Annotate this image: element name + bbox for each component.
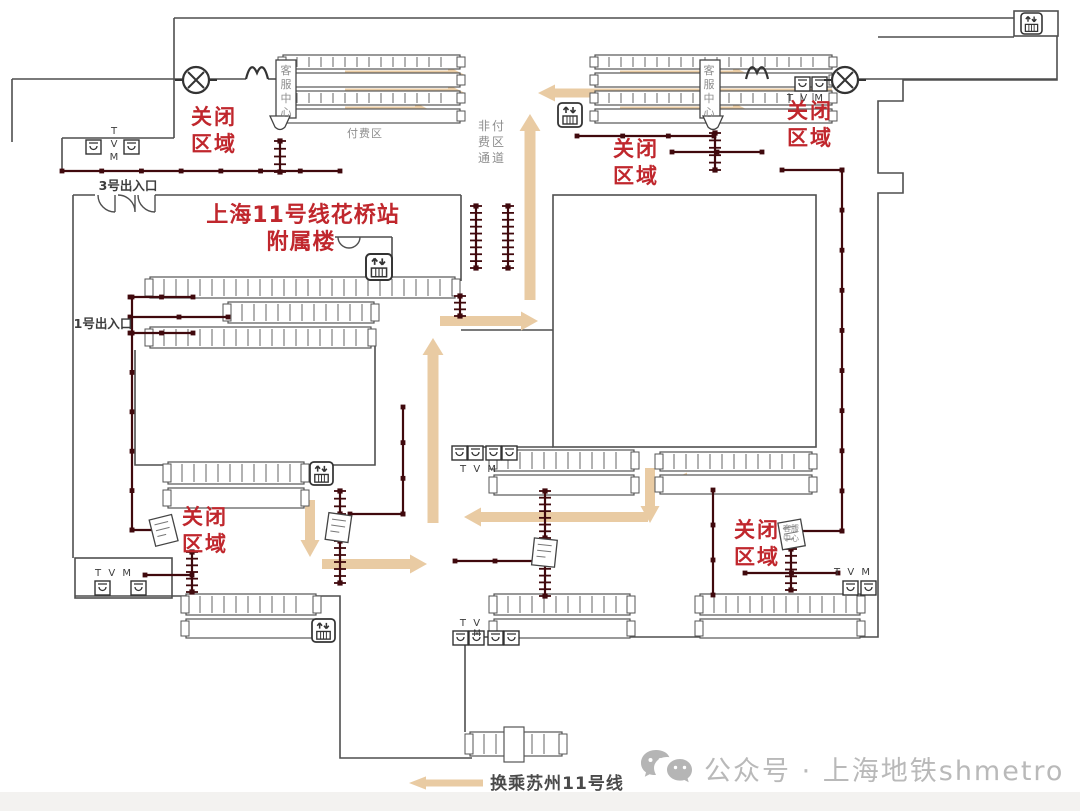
bank-cap — [655, 477, 663, 492]
barrier-dot — [840, 168, 845, 173]
station-map: 关闭区域关闭区域关闭区域关闭区域关闭区域上海11号线花桥站附属楼非付费区通道付费… — [0, 0, 1080, 811]
gate-dot — [505, 203, 510, 208]
tvm-icon — [486, 446, 501, 460]
closed-barrier-line — [60, 169, 343, 174]
tvm-label: T V M — [786, 93, 825, 104]
barrier-dot — [711, 523, 716, 528]
barrier-dot — [130, 449, 135, 454]
barrier-dot — [840, 328, 845, 333]
arrow-head — [464, 508, 481, 527]
customer-service-label: 客 — [281, 63, 292, 77]
paid-concourse-room — [553, 195, 816, 447]
exit-1-label: 1号出入口 — [74, 316, 133, 331]
tvm-icon — [124, 140, 139, 154]
fare-gate-icon — [470, 203, 482, 270]
elevator-icon — [310, 462, 333, 485]
gate-dot — [542, 488, 547, 493]
closed-barrier-line — [840, 168, 845, 534]
bank-cap — [145, 329, 153, 346]
flow-arrows — [196, 66, 832, 789]
barrier-dot — [840, 448, 845, 453]
bank-cap — [809, 477, 817, 492]
tvm-icon — [488, 631, 503, 645]
barrier-dot — [130, 331, 135, 336]
bank-cap — [457, 93, 465, 103]
flow-arrow — [440, 312, 538, 331]
tvm-label: T V M — [459, 464, 498, 475]
barrier-dot — [840, 368, 845, 373]
closed-barrier-line — [401, 405, 406, 517]
entrance-door-icon — [118, 195, 135, 212]
barrier-dot — [493, 559, 498, 564]
arrow-head — [409, 776, 426, 789]
bank-row — [700, 594, 860, 615]
escalator-bank — [181, 594, 321, 638]
tvm-icon — [468, 446, 483, 460]
customer-service-label: 心 — [281, 106, 292, 119]
station-title: 上海11号线花桥站 — [206, 202, 400, 228]
paid-area-label: 付费区 — [347, 127, 383, 140]
closed-area-label: 关闭 — [613, 137, 659, 161]
bank-row — [228, 302, 374, 323]
bank-cap — [590, 75, 598, 85]
watermark-text: 公众号 · 上海地铁shmetro — [704, 749, 1064, 788]
barrier-dot — [401, 440, 406, 445]
bank-cap — [655, 454, 663, 469]
barrier-dot — [840, 408, 845, 413]
closed-barrier-line — [670, 150, 765, 155]
bank-cap — [627, 596, 635, 613]
barrier-dot — [715, 150, 720, 155]
closed-area-label: 关闭 — [191, 105, 237, 129]
gate-dot — [473, 265, 478, 270]
elevator-icon — [1021, 13, 1042, 34]
bank-row — [150, 277, 455, 298]
non-paid-passage-label: 非付 — [478, 119, 506, 133]
barrier-dot — [711, 593, 716, 598]
tvm-icon — [843, 581, 858, 595]
bank-cap — [181, 596, 189, 613]
closed-area-label: 关闭 — [734, 518, 780, 542]
tvm-icon — [795, 77, 810, 91]
closed-area-label: 区域 — [182, 532, 228, 556]
bank-cap — [631, 452, 639, 469]
barrier-dot — [143, 573, 148, 578]
escalator-bank — [655, 452, 817, 494]
station-floor-plan: 关闭区域关闭区域关闭区域关闭区域关闭区域上海11号线花桥站附属楼非付费区通道付费… — [0, 0, 1080, 811]
closed-area-label: 区域 — [787, 126, 833, 150]
closed-crossing-icon — [175, 67, 217, 93]
barrier-dot — [258, 169, 263, 174]
fare-gate-icon — [186, 549, 198, 594]
arrow-head — [520, 114, 541, 131]
bank-cap — [489, 596, 497, 613]
elevator-icon — [558, 103, 582, 127]
bank-cap — [590, 111, 598, 121]
transfer-label: 换乘苏州11号线 — [490, 773, 624, 794]
service-booth-icon — [149, 514, 178, 546]
bank-cap — [457, 111, 465, 121]
tvm-icon — [95, 581, 110, 595]
bank-cap — [809, 454, 817, 469]
non-paid-passage-label: 费区 — [478, 135, 506, 149]
tvm-label: M — [110, 152, 119, 163]
barrier-dot — [130, 409, 135, 414]
fare-gate-icon — [785, 546, 797, 592]
barrier-dot — [840, 208, 845, 213]
bank-cap — [368, 329, 376, 346]
barrier-dot — [840, 529, 845, 534]
service-booth-icon — [325, 513, 352, 543]
bank-row — [494, 475, 634, 495]
tvm-body — [488, 631, 503, 645]
closed-area-label: 区域 — [191, 132, 237, 156]
bank-cap — [301, 490, 309, 506]
tvm-body — [468, 446, 483, 460]
bank-cap — [829, 57, 837, 67]
gate-dot — [337, 580, 342, 585]
escalator-bank — [223, 302, 379, 323]
closed-barrier-line — [130, 331, 135, 533]
customer-service-label: 心 — [704, 106, 715, 119]
elevator-icon — [366, 254, 392, 280]
barrier-dot — [99, 169, 104, 174]
closed-barrier-line — [348, 512, 406, 517]
closed-area-label: 关闭 — [182, 505, 228, 529]
barrier-dot — [401, 405, 406, 410]
gate-dot — [542, 593, 547, 598]
bank-cap — [695, 596, 703, 613]
bank-row — [283, 109, 460, 123]
gate-dot — [473, 203, 478, 208]
tvm-body — [124, 140, 139, 154]
booth-frame — [325, 513, 352, 543]
bank-cap — [145, 279, 153, 296]
bank-cap — [627, 621, 635, 636]
barrier-dot — [711, 488, 716, 493]
customer-service-label: 客服 — [783, 523, 799, 533]
bank-row — [660, 475, 812, 494]
non-paid-passage-label: 通道 — [478, 151, 506, 165]
bank-row — [283, 91, 460, 105]
barrier-dot — [743, 571, 748, 576]
barrier-dot — [60, 169, 65, 174]
barrier-dot — [670, 150, 675, 155]
customer-service-label: 客 — [704, 63, 715, 77]
barrier-dot — [401, 476, 406, 481]
barrier-dot — [218, 169, 223, 174]
entrance-door-icon — [138, 195, 155, 212]
booth-frame — [149, 514, 178, 546]
labels: 关闭区域关闭区域关闭区域关闭区域关闭区域上海11号线花桥站附属楼非付费区通道付费… — [74, 63, 872, 794]
bank-cap — [590, 57, 598, 67]
bank-cap — [457, 75, 465, 85]
arrow-head — [423, 338, 444, 355]
barrier-dot — [575, 134, 580, 139]
wechat-icon — [640, 748, 694, 788]
gate-dot — [457, 313, 462, 318]
service-booth-icon — [532, 538, 558, 567]
watermark: 公众号 · 上海地铁shmetro — [640, 748, 1064, 788]
bank-row — [186, 619, 316, 638]
barrier-dot — [338, 169, 343, 174]
arrow-head — [301, 540, 320, 557]
closed-area-label: 区域 — [734, 545, 780, 569]
tvm-icon — [131, 581, 146, 595]
customer-service-label: 中 — [704, 92, 715, 105]
barrier-dot — [177, 315, 182, 320]
tvm-icon — [504, 631, 519, 645]
bank-row — [660, 452, 812, 471]
tvm-body — [95, 581, 110, 595]
bank-row — [283, 55, 460, 69]
fare-gate-icon — [454, 293, 466, 318]
tvm-label: T V — [459, 618, 482, 629]
tvm-body — [453, 631, 468, 645]
tvm-body — [795, 77, 810, 91]
closed-barrier-line — [143, 573, 195, 578]
bank-cap — [590, 93, 598, 103]
tvm-label: V — [111, 139, 118, 150]
barrier-dot — [179, 169, 184, 174]
barrier-dot — [130, 488, 135, 493]
tvm-body — [131, 581, 146, 595]
barrier-dot — [840, 288, 845, 293]
elevator-icon — [312, 619, 335, 642]
tvm-body — [486, 446, 501, 460]
escalator-bank — [695, 594, 865, 638]
barrier-dot — [666, 134, 671, 139]
entrance-door-icon — [98, 195, 115, 212]
double-door-icon — [246, 67, 268, 79]
flow-arrow — [520, 114, 541, 300]
barrier-dot — [401, 512, 406, 517]
tvm-body — [86, 140, 101, 154]
flow-arrow — [409, 776, 483, 789]
bank-row — [494, 594, 630, 615]
gate-dot — [505, 265, 510, 270]
customer-service-label: 服 — [704, 78, 715, 91]
closed-barriers — [60, 130, 845, 598]
bank-cap — [559, 734, 567, 754]
bank-cap — [181, 621, 189, 636]
barrier-dot — [298, 169, 303, 174]
closed-barrier-line — [743, 571, 841, 576]
barrier-dot — [712, 134, 717, 139]
barrier-dot — [711, 558, 716, 563]
gate-dot — [457, 293, 462, 298]
bank-row — [283, 73, 460, 87]
bank-cap — [163, 490, 171, 506]
booth-frame — [532, 538, 558, 567]
tvm-icon — [502, 446, 517, 460]
double-door-icon — [338, 237, 360, 248]
fare-gate-icon — [274, 138, 286, 174]
arrow-head — [521, 312, 538, 331]
barrier-dot — [453, 559, 458, 564]
barrier-dot — [191, 295, 196, 300]
barrier-dot — [226, 315, 231, 320]
fare-gate-icon — [334, 488, 346, 516]
barrier-dot — [840, 248, 845, 253]
gate-dot — [788, 587, 793, 592]
tvm-icon — [453, 631, 468, 645]
wall — [135, 332, 375, 465]
bank-row — [168, 462, 304, 484]
gate-dot — [337, 488, 342, 493]
flow-arrow — [322, 555, 427, 574]
flow-arrow — [423, 338, 444, 523]
barrier-dot — [840, 488, 845, 493]
fare-gate-icon — [334, 538, 346, 585]
tvm-label: T V M — [94, 568, 133, 579]
gate-dot — [712, 167, 717, 172]
closed-area-label: 区域 — [613, 164, 659, 188]
arrow-head — [538, 84, 555, 101]
closed-barrier-line — [711, 488, 716, 598]
gate-dot — [277, 138, 282, 143]
barrier-dot — [130, 528, 135, 533]
customer-service-label: 中 — [281, 92, 292, 105]
tvm-body — [502, 446, 517, 460]
barrier-dot — [780, 168, 785, 173]
tvm-label: T — [110, 126, 118, 137]
bank-cap — [301, 464, 309, 482]
tvm-body — [504, 631, 519, 645]
bank-cap — [695, 621, 703, 636]
arrow-head — [410, 555, 427, 574]
bank-cap — [489, 477, 497, 493]
tvm-icon — [861, 581, 876, 595]
barrier-dot — [190, 573, 195, 578]
page-bottom-strip — [0, 792, 1080, 811]
closed-barrier-line — [780, 168, 845, 173]
barrier-dot — [159, 295, 164, 300]
barrier-dot — [789, 571, 794, 576]
bank-cap — [631, 477, 639, 493]
exit-3-label: 3号出入口 — [99, 178, 158, 193]
fare-gate-icon — [502, 203, 514, 270]
walkway-door — [504, 727, 524, 762]
station-title: 附属楼 — [266, 229, 335, 255]
tvm-label: M — [473, 629, 481, 639]
tvm-icon — [86, 140, 101, 154]
barrier-dot — [130, 295, 135, 300]
bank-cap — [857, 621, 865, 636]
bank-cap — [371, 304, 379, 321]
closed-barrier-line — [798, 529, 845, 534]
tvm-body — [861, 581, 876, 595]
tvm-body — [843, 581, 858, 595]
closed-barrier-line — [128, 315, 231, 320]
bank-cap — [465, 734, 473, 754]
bank-cap — [857, 596, 865, 613]
closed-barrier-line — [453, 559, 538, 564]
gate-dot — [189, 589, 194, 594]
bank-cap — [163, 464, 171, 482]
escalator-bank — [163, 462, 309, 508]
customer-service-label: 服 — [281, 78, 292, 91]
tvm-label: T V M — [833, 567, 872, 578]
escalator-bank — [145, 327, 376, 348]
customer-service-label: 中心 — [783, 533, 799, 543]
bank-row — [700, 619, 860, 638]
barrier-dot — [139, 169, 144, 174]
bank-cap — [313, 596, 321, 613]
bank-cap — [457, 57, 465, 67]
barrier-dot — [191, 331, 196, 336]
flow-arrow — [464, 508, 648, 527]
barrier-dot — [130, 370, 135, 375]
barrier-dot — [159, 331, 164, 336]
barrier-dot — [760, 150, 765, 155]
tvm-icon — [452, 446, 467, 460]
tvm-body — [452, 446, 467, 460]
